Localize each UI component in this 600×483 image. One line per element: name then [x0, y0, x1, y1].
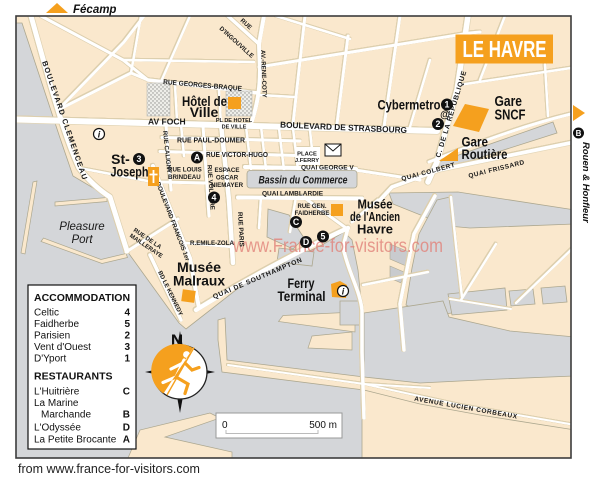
- svg-text:R.EMILE-ZOLA: R.EMILE-ZOLA: [190, 240, 235, 247]
- svg-text:J.FERRY: J.FERRY: [295, 158, 319, 164]
- svg-text:RESTAURANTS: RESTAURANTS: [34, 371, 113, 383]
- svg-text:C: C: [123, 387, 130, 398]
- svg-text:Port: Port: [71, 234, 93, 246]
- svg-text:FAIDHERBE: FAIDHERBE: [295, 211, 330, 217]
- svg-text:Cybermetro: Cybermetro: [378, 97, 441, 113]
- svg-text:Fécamp: Fécamp: [73, 4, 116, 16]
- svg-text:BRINDEAU: BRINDEAU: [168, 174, 201, 181]
- svg-text:RUE LOUIS: RUE LOUIS: [168, 167, 202, 174]
- svg-text:4: 4: [212, 193, 217, 203]
- svg-text:2: 2: [124, 331, 130, 342]
- svg-text:Malraux: Malraux: [173, 274, 225, 289]
- svg-text:Faidherbe: Faidherbe: [34, 319, 79, 330]
- svg-text:500 m: 500 m: [309, 420, 337, 431]
- svg-text:5: 5: [124, 319, 130, 330]
- svg-text:Terminal: Terminal: [278, 288, 326, 304]
- svg-text:Celtic: Celtic: [34, 308, 59, 319]
- svg-text:Vent d'Ouest: Vent d'Ouest: [34, 342, 91, 353]
- svg-text:3: 3: [137, 154, 142, 164]
- svg-text:ESPACE: ESPACE: [215, 167, 240, 174]
- svg-text:RUE GEN.: RUE GEN.: [297, 204, 326, 210]
- svg-text:Joseph: Joseph: [111, 164, 149, 180]
- svg-text:L'Odyssée: L'Odyssée: [34, 423, 81, 434]
- svg-text:D'Yport: D'Yport: [34, 354, 67, 365]
- svg-text:B: B: [576, 129, 582, 138]
- svg-text:Pleasure: Pleasure: [59, 221, 104, 233]
- svg-text:Bassin du Commerce: Bassin du Commerce: [259, 175, 348, 187]
- svg-text:Marchande: Marchande: [41, 410, 91, 421]
- svg-text:from www.france-for-visitors.c: from www.france-for-visitors.com: [18, 462, 200, 476]
- svg-text:ACCOMMODATION: ACCOMMODATION: [34, 292, 130, 304]
- svg-text:1: 1: [445, 100, 450, 110]
- svg-text:C: C: [293, 217, 300, 227]
- svg-text:PLACE: PLACE: [297, 152, 317, 158]
- svg-text:D: D: [123, 423, 130, 434]
- svg-text:Rouen & Honfleur: Rouen & Honfleur: [580, 142, 591, 224]
- svg-text:La Marine: La Marine: [34, 398, 79, 409]
- svg-text:5: 5: [321, 232, 326, 242]
- svg-text:B: B: [123, 410, 130, 421]
- svg-text:www.France-for-visitors.com: www.France-for-visitors.com: [232, 236, 443, 257]
- svg-text:Havre: Havre: [357, 222, 393, 237]
- svg-text:Parisien: Parisien: [34, 331, 70, 342]
- svg-text:4: 4: [124, 308, 130, 319]
- svg-text:LE HAVRE: LE HAVRE: [463, 36, 547, 62]
- svg-text:A: A: [123, 435, 130, 446]
- svg-text:3: 3: [124, 342, 130, 353]
- svg-text:Routière: Routière: [462, 146, 508, 162]
- svg-text:RUE VICTOR-HUGO: RUE VICTOR-HUGO: [206, 152, 269, 159]
- svg-text:D: D: [303, 237, 309, 247]
- svg-text:DE VILLE: DE VILLE: [222, 125, 247, 131]
- svg-text:QUAI LAMBLARDIE: QUAI LAMBLARDIE: [262, 191, 324, 198]
- svg-text:AV FOCH: AV FOCH: [148, 117, 186, 127]
- svg-text:SNCF: SNCF: [495, 108, 526, 124]
- svg-text:NIEMAYER: NIEMAYER: [211, 182, 244, 189]
- svg-text:A: A: [194, 153, 201, 163]
- svg-text:0: 0: [222, 420, 228, 431]
- svg-text:La Petite Brocante: La Petite Brocante: [34, 435, 117, 446]
- svg-text:L'Huitrière: L'Huitrière: [34, 387, 80, 398]
- svg-text:PL DE HOTEL: PL DE HOTEL: [216, 118, 253, 124]
- svg-text:@: @: [440, 110, 450, 121]
- svg-text:OSCAR: OSCAR: [216, 175, 239, 182]
- svg-text:2: 2: [436, 119, 441, 129]
- svg-text:Ville: Ville: [190, 104, 219, 120]
- svg-text:1: 1: [124, 354, 130, 365]
- svg-text:QUAI GEORGE V: QUAI GEORGE V: [301, 165, 354, 172]
- svg-text:RUE PAUL-DOUMER: RUE PAUL-DOUMER: [177, 138, 245, 145]
